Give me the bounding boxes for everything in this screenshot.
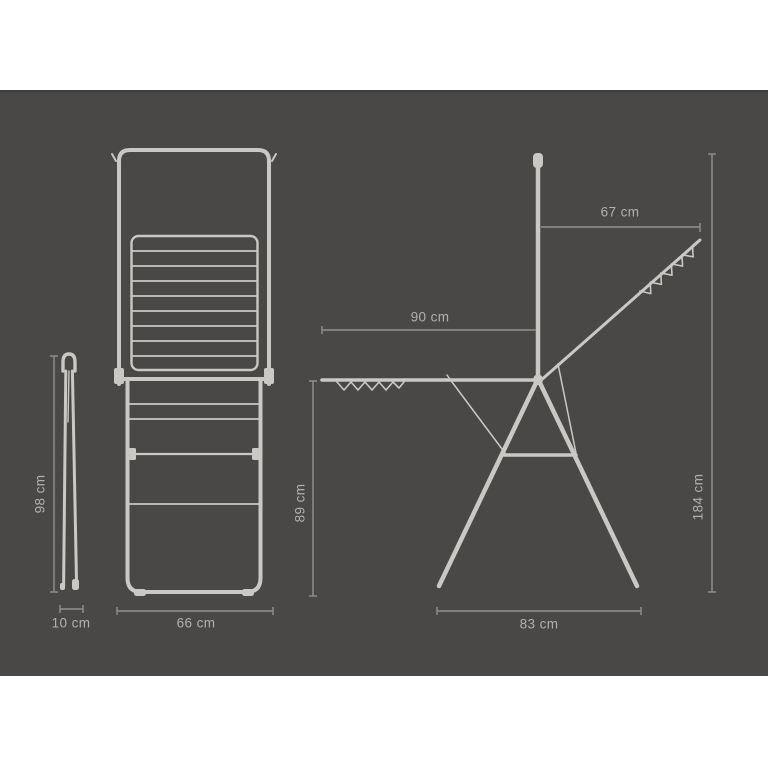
front-view (112, 150, 276, 592)
front-foot-left (134, 589, 146, 596)
dim-top-arm (541, 223, 700, 232)
dim-folded-height (50, 356, 58, 592)
dim-label-rack-height: 89 cm (293, 484, 308, 523)
dim-folded-depth (60, 605, 83, 613)
side-view (322, 166, 700, 586)
screenshot-stage: 98 cm 10 cm 66 cm 90 cm 67 cm 89 cm 184 … (0, 0, 768, 768)
folded-view (63, 354, 77, 586)
hinge-block-left (127, 448, 136, 460)
hinge-tab-right (264, 368, 274, 384)
hinge-block-right (252, 448, 261, 460)
diagram-panel (0, 90, 768, 676)
dim-label-total-height: 184 cm (691, 474, 706, 521)
product-filled-parts (60, 153, 543, 596)
dim-label-folded-depth: 10 cm (52, 616, 91, 631)
dim-label-base-width: 83 cm (520, 617, 559, 632)
dim-rack-height (309, 381, 317, 596)
dim-label-front-width: 66 cm (177, 616, 216, 631)
dim-label-top-arm: 67 cm (601, 205, 640, 220)
dim-total-height (708, 154, 716, 592)
dim-label-folded-height: 98 cm (33, 475, 48, 514)
dim-wing-span (322, 326, 536, 334)
folded-foot (72, 579, 79, 590)
front-foot-right (242, 589, 254, 596)
folded-foot (60, 583, 65, 590)
wire-panel-rods (133, 251, 256, 356)
dimension-diagram-svg (0, 92, 768, 678)
dim-front-width (117, 607, 273, 615)
hinge-tab-left (114, 368, 124, 384)
frame-hub (534, 375, 543, 385)
pole-cap (533, 153, 543, 168)
dim-label-wing-span: 90 cm (411, 310, 450, 325)
dim-base-width (437, 607, 641, 615)
